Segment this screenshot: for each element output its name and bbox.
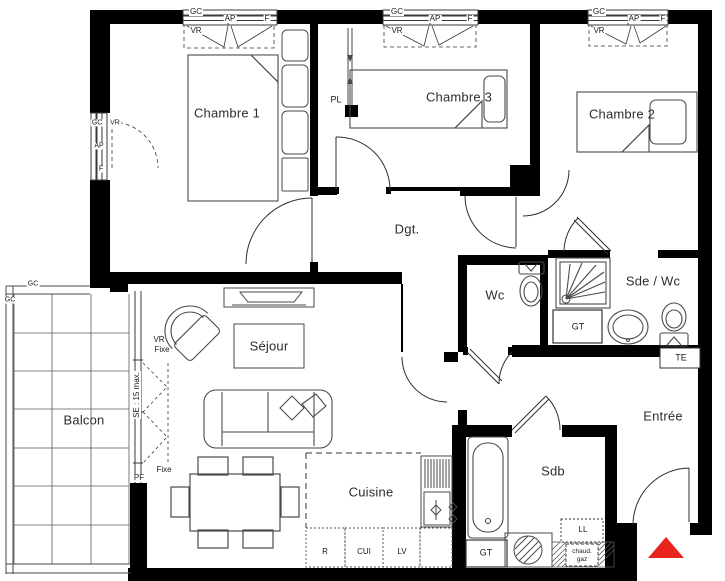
room-label-sejour: Séjour	[250, 340, 289, 353]
window3-label-gc: GC	[592, 8, 606, 16]
window3-label-ap: AP	[628, 15, 641, 23]
tv-console	[224, 288, 314, 307]
sejour-window-label-vr: VR	[153, 336, 164, 344]
room-label-degagement: Dgt.	[395, 223, 420, 236]
label-cuisiniere: CUI	[357, 548, 371, 556]
balcony-label-gc-1: GC	[27, 281, 40, 288]
window2-label-f: F	[467, 15, 474, 23]
wardrobe-chambre1	[282, 30, 308, 191]
floor-plan: Chambre 1 Chambre 3 Chambre 2 Dgt. Wc Sd…	[0, 0, 725, 581]
label-chaud: chaud.	[572, 549, 592, 556]
bathtub	[468, 437, 508, 538]
label-lave-vaisselle: LV	[397, 548, 406, 556]
sdb-washbasin	[505, 533, 552, 567]
shower	[556, 258, 610, 308]
label-refrigerateur: R	[322, 548, 328, 556]
sde-toilet	[660, 303, 688, 346]
window2-label-ap: AP	[429, 15, 442, 23]
room-label-chambre3: Chambre 3	[426, 91, 492, 104]
balcony-label-gc-2: GC	[4, 297, 17, 304]
label-pl: PL	[330, 96, 341, 105]
sejour-window-label-fixe-bottom: Fixe	[156, 466, 171, 474]
window1-label-f: F	[264, 15, 271, 23]
window1-label-vr: VR	[189, 27, 202, 35]
room-label-chambre2: Chambre 2	[589, 108, 655, 121]
bed-single-chambre2	[577, 92, 697, 152]
label-te: TE	[675, 354, 687, 363]
bed-double-chambre1	[188, 55, 278, 201]
room-label-sde-wc: Sde / Wc	[626, 275, 680, 288]
room-label-wc: Wc	[485, 289, 504, 302]
window2-label-gc: GC	[390, 8, 404, 16]
room-label-entree: Entrée	[643, 410, 683, 423]
entrance-marker-triangle	[648, 537, 684, 558]
sofa	[204, 390, 332, 448]
walls	[90, 10, 712, 581]
label-gaz: gaz	[577, 557, 587, 564]
window3-label-vr: VR	[592, 27, 605, 35]
room-label-sdb: Sdb	[541, 465, 565, 478]
sejour-window-label-fixe-top: Fixe	[154, 346, 169, 354]
balcony-tile-grid	[14, 294, 129, 564]
dining-table	[171, 457, 299, 548]
windows	[91, 10, 668, 483]
window1-label-gc: GC	[189, 8, 203, 16]
window4-label-ap: AP	[93, 143, 104, 150]
window4-label-vr: VR	[109, 120, 121, 127]
label-gt-sdb: GT	[480, 549, 493, 558]
room-label-chambre1: Chambre 1	[194, 107, 260, 120]
window2-label-vr: VR	[390, 27, 403, 35]
window4-label-gc: GC	[91, 120, 104, 127]
sejour-window-label-se-max: SE : 15 max.	[133, 371, 141, 419]
window3-label-f: F	[660, 15, 667, 23]
window1-label-ap: AP	[224, 15, 237, 23]
room-label-cuisine: Cuisine	[349, 486, 394, 499]
sde-washbasin	[608, 310, 648, 344]
window4-label-f: F	[98, 166, 104, 173]
kitchen-sink-unit	[421, 456, 457, 527]
balcony	[6, 286, 131, 574]
room-label-balcon: Balcon	[64, 414, 105, 427]
label-gt-sde: GT	[572, 323, 585, 332]
sejour-window-label-pf: PF	[133, 474, 145, 482]
label-ll: LL	[579, 526, 588, 534]
